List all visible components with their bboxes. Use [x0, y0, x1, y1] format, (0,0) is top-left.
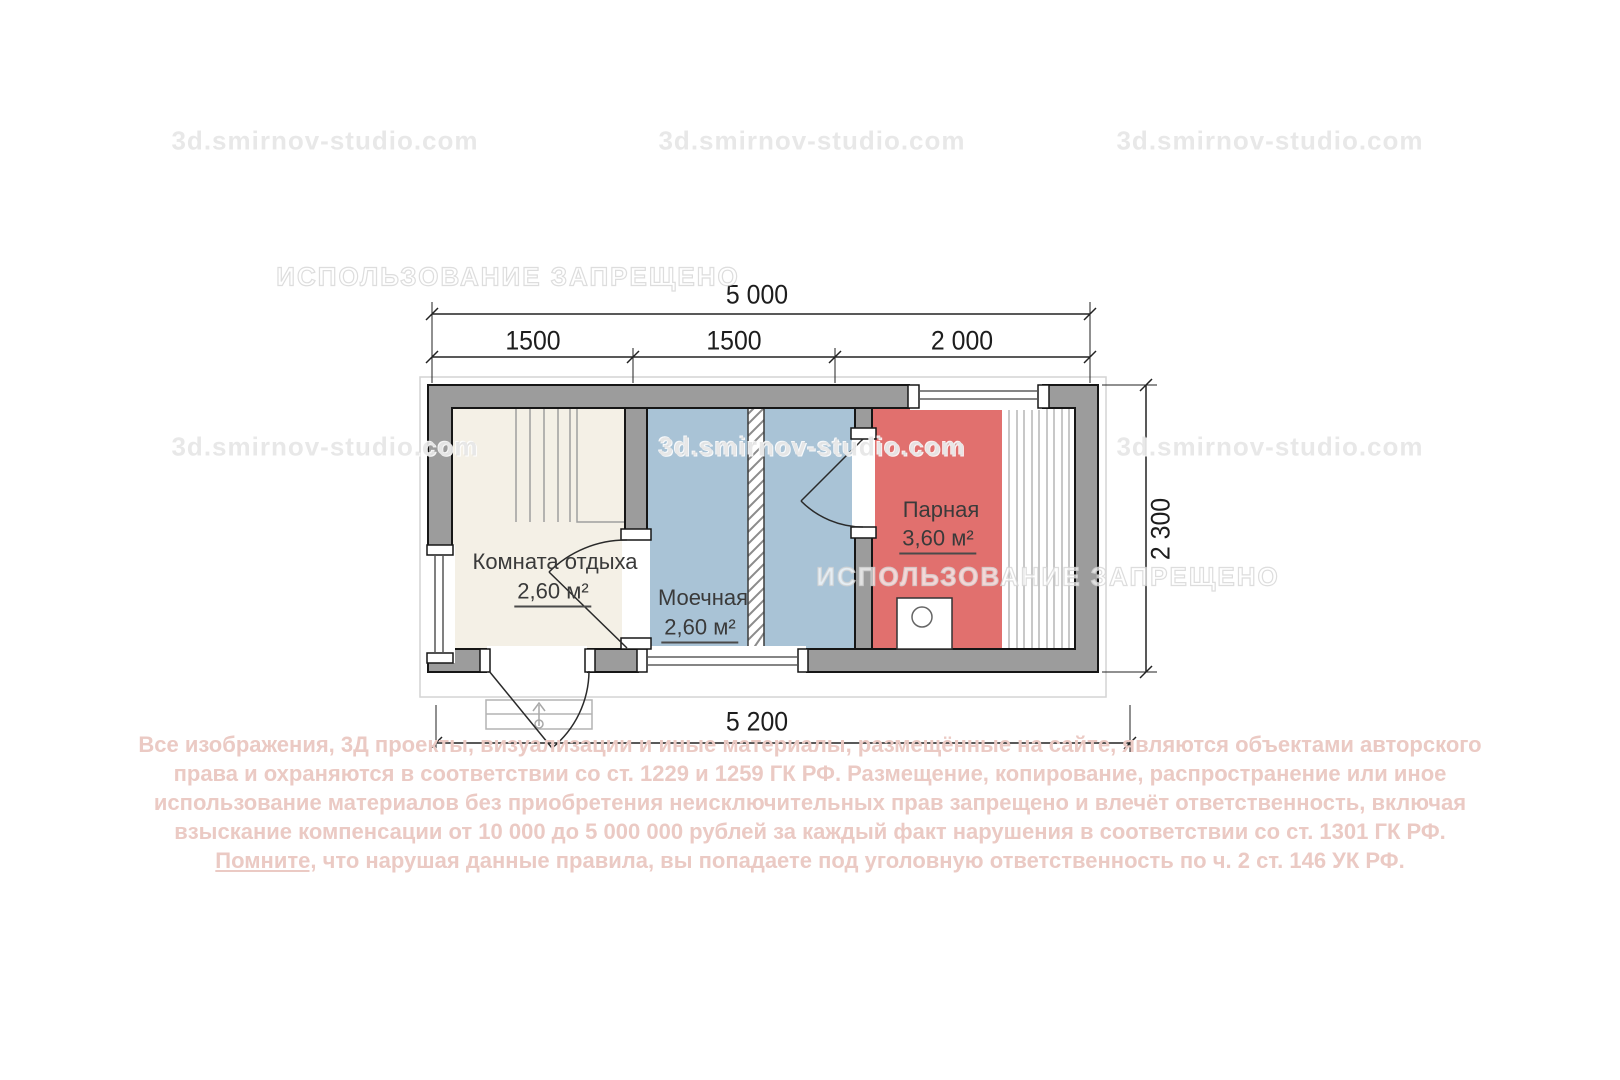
window-top [908, 383, 1049, 410]
floor-plan-svg [0, 0, 1620, 1080]
room-steam-name: Парная [903, 497, 980, 523]
room-steam-area: 3,60 м² [899, 526, 976, 555]
room-rest-area: 2,60 м² [514, 579, 591, 608]
watermark-forbidden: ИСПОЛЬЗОВАНИЕ ЗАПРЕЩЕНО [276, 262, 739, 293]
dim-right-label: 2 300 [1146, 498, 1177, 560]
watermark-site: 3d.smirnov-studio.com [658, 126, 965, 157]
watermark-site: 3d.smirnov-studio.com [658, 432, 965, 463]
copyright-line: Все изображения, 3Д проекты, визуализаци… [80, 730, 1540, 759]
steam-bench-area [1002, 408, 1075, 649]
watermark-site: 3d.smirnov-studio.com [1116, 126, 1423, 157]
copyright-line: использование материалов без приобретени… [80, 788, 1540, 817]
stove [897, 598, 952, 649]
room-wash-area: 2,60 м² [661, 615, 738, 644]
copyright-line: взыскание компенсации от 10 000 до 5 000… [80, 817, 1540, 846]
copyright-notice: Все изображения, 3Д проекты, визуализаци… [80, 730, 1540, 875]
dim-segment-2-label: 1500 [706, 326, 761, 357]
window-bottom [637, 646, 808, 675]
watermark-site: 3d.smirnov-studio.com [171, 432, 478, 463]
window-left [425, 545, 455, 663]
copyright-remember: Помните, [215, 848, 316, 873]
copyright-line: Помните, что нарушая данные правила, вы … [80, 846, 1540, 875]
copyright-line-rest: что нарушая данные правила, вы попадаете… [316, 848, 1404, 873]
copyright-line: права и охраняются в соответствии со ст.… [80, 759, 1540, 788]
porch-steps [486, 700, 592, 729]
watermark-forbidden: ИСПОЛЬЗОВАНИЕ ЗАПРЕЩЕНО [816, 562, 1279, 593]
watermark-site: 3d.smirnov-studio.com [171, 126, 478, 157]
room-rest-name: Комната отдыха [473, 549, 638, 575]
dim-segment-3-label: 2 000 [931, 326, 993, 357]
watermark-site: 3d.smirnov-studio.com [1116, 432, 1423, 463]
dim-segment-1-label: 1500 [505, 326, 560, 357]
room-wash-name: Моечная [658, 585, 748, 611]
